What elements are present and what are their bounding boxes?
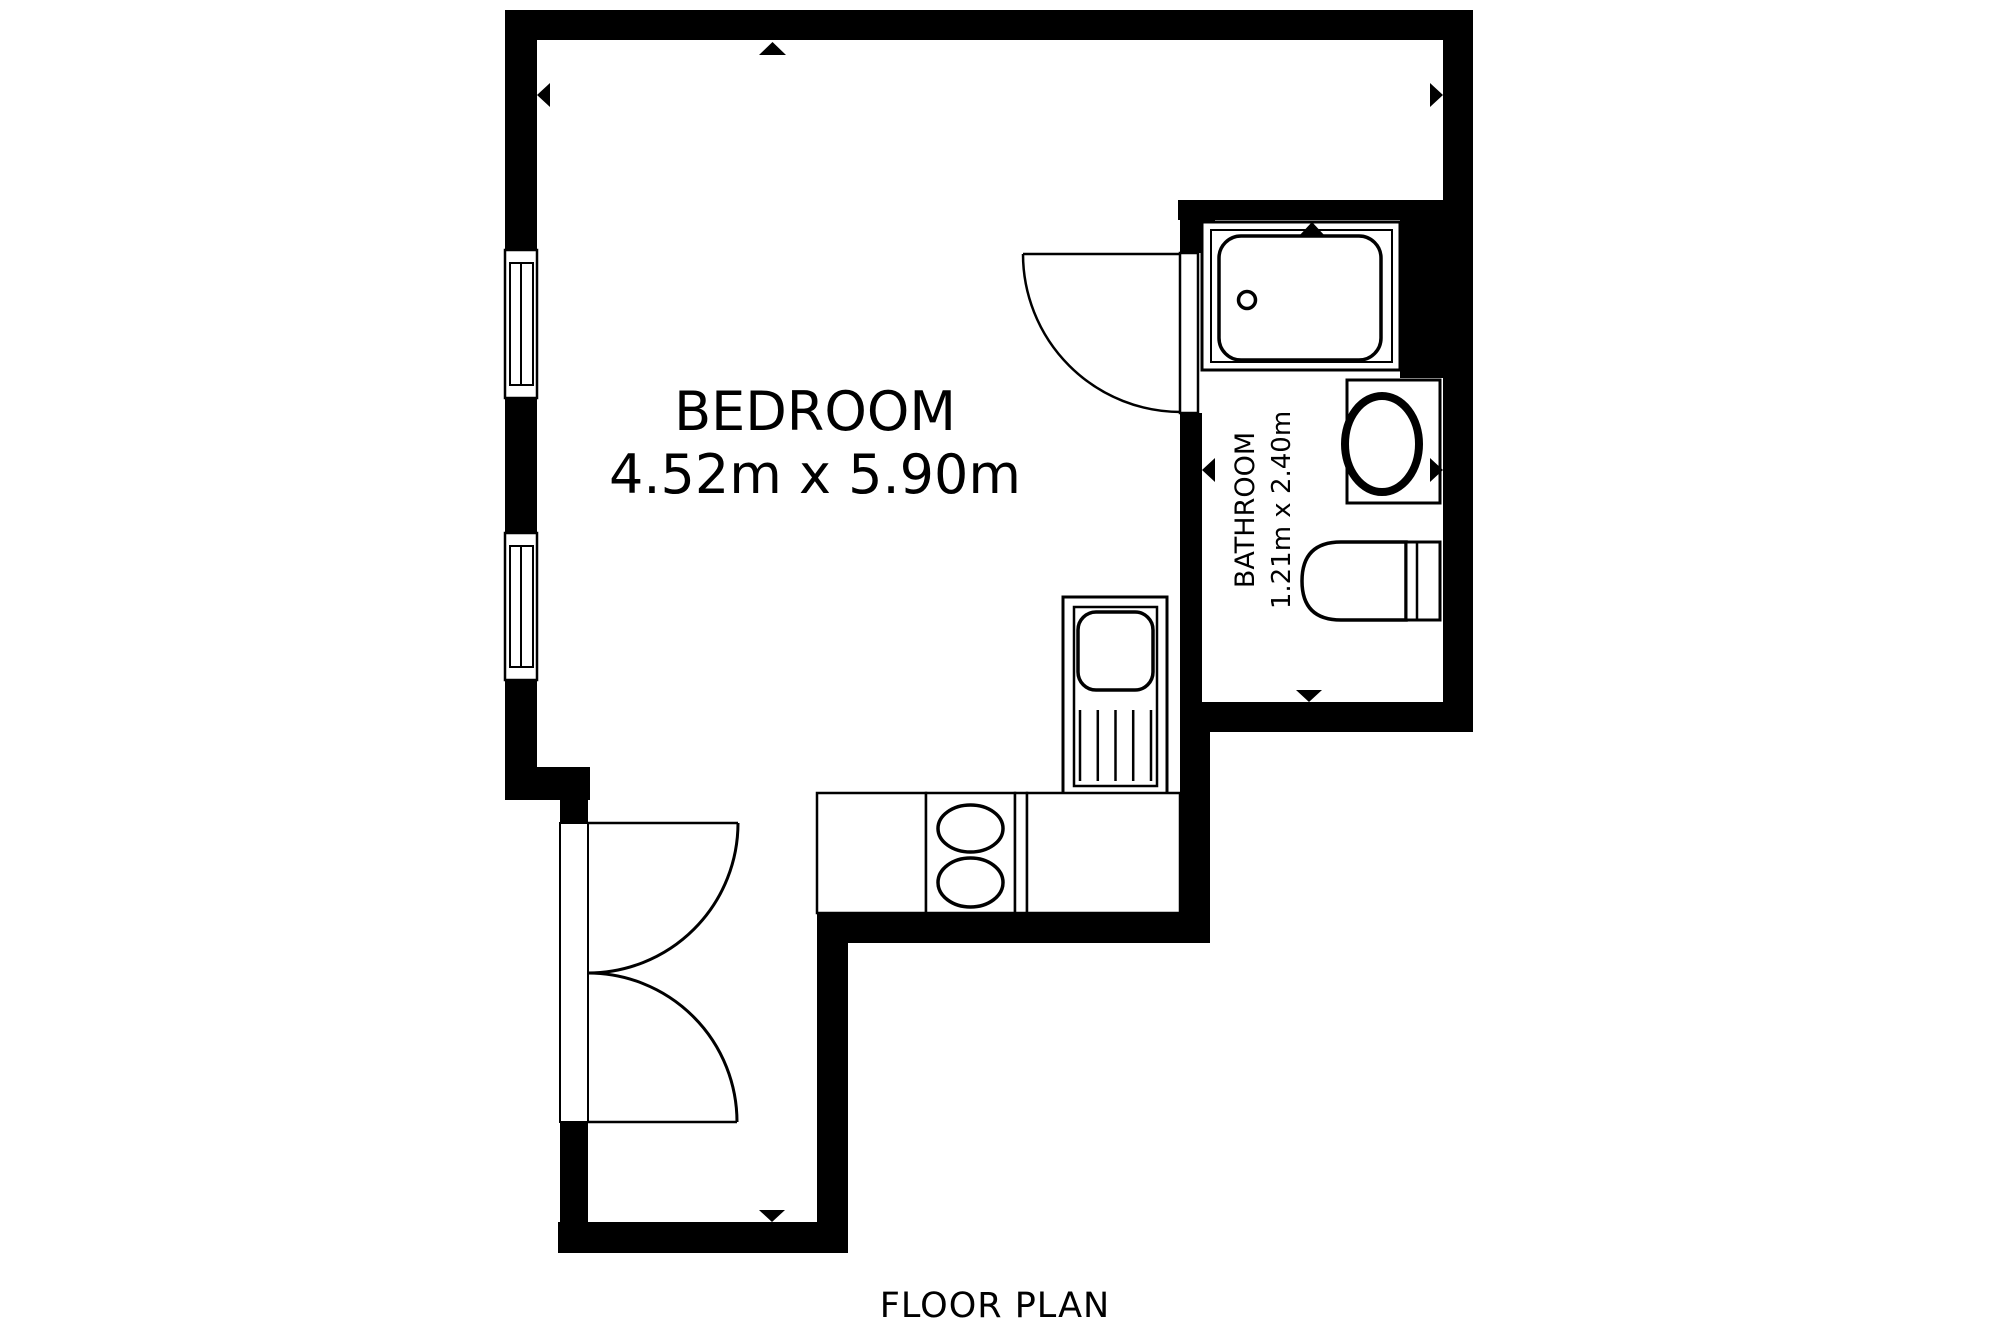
right-arrow-right-wall-icon [1430,83,1443,107]
kitchen-counter [817,793,1180,913]
down-arrow-bathroom-icon [1296,690,1322,702]
left-arrow-left-wall-icon [537,83,550,107]
wall-above-entry-door [560,800,588,823]
down-arrow-hall-icon [759,1210,785,1222]
kitchen-sink-unit [1063,597,1167,795]
up-arrow-top-wall-icon [759,42,786,55]
wall-hall-right [817,943,848,1253]
wall-bathroom-left [1180,413,1202,713]
floor-plan-drawing: BEDROOM 4.52m x 5.90m BATHROOM 1.21m x 2… [0,0,1999,1333]
wall-kitchen-bottom [817,913,1210,943]
bathroom-door [1023,253,1198,413]
bathroom-dimensions: 1.21m x 2.40m [1267,411,1297,609]
shower [1202,222,1400,370]
wall-shower-filler [1400,220,1443,378]
wall-bathroom-bottom [1202,702,1473,732]
door-threshold [560,823,588,1122]
bathroom-label-group: BATHROOM 1.21m x 2.40m [1230,411,1297,609]
wall-left-mid [505,398,537,533]
floor-plan-canvas: BEDROOM 4.52m x 5.90m BATHROOM 1.21m x 2… [0,0,1999,1333]
worktop-right [1027,793,1180,913]
toilet-cistern [1406,542,1440,620]
entry-double-door [560,823,738,1122]
wall-hall-bottom [558,1222,848,1253]
wall-kitchen-right [1180,703,1210,943]
bedroom-label: BEDROOM [674,380,956,443]
bathroom-label: BATHROOM [1230,432,1261,588]
left-arrow-bathroom-icon [1202,458,1215,482]
counter-divider [1015,793,1027,913]
left-wall-window-lower [505,533,537,680]
washbasin [1345,380,1440,503]
wall-right [1443,10,1473,732]
wall-bathroom-top [1178,200,1443,220]
left-wall-window-upper [505,250,537,398]
toilet [1302,542,1440,620]
wall-left-upper [505,10,537,250]
shower-enclosure [1202,222,1400,370]
floor-plan-title: FLOOR PLAN [880,1286,1110,1326]
bedroom-dimensions: 4.52m x 5.90m [609,443,1021,506]
wall-top [505,10,1473,40]
worktop-left [817,793,926,913]
walls [505,10,1473,1253]
upper-leaf-swing-arc [588,823,738,973]
door-leaf [1180,253,1198,413]
wall-jog [505,767,590,800]
door-swing-arc [1023,254,1181,412]
lower-leaf-swing-arc [588,973,737,1122]
toilet-bowl [1302,542,1406,620]
